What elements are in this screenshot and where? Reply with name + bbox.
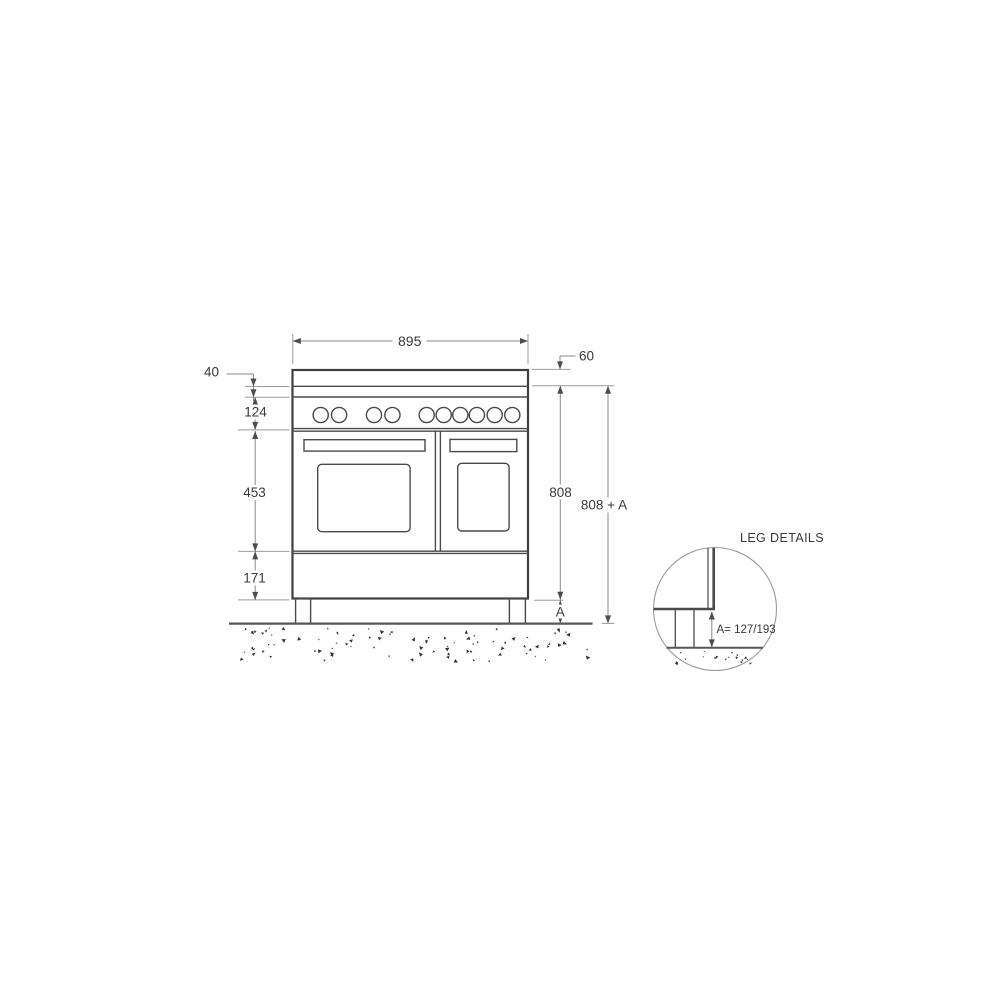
dimension-label-control-panel: 124 xyxy=(244,405,267,420)
ground-speck xyxy=(419,646,423,650)
right-oven-handle xyxy=(450,439,517,451)
arrow-down-icon xyxy=(557,592,563,600)
dimension-label-overall-width: 895 xyxy=(398,333,422,349)
ground-speck xyxy=(566,633,570,637)
arrow-up-icon xyxy=(709,612,715,620)
arrow-up-icon xyxy=(605,386,611,394)
ground-speck xyxy=(352,634,354,637)
ground-speck xyxy=(265,630,268,633)
ground-speck xyxy=(378,637,382,640)
dimension-label-oven-door: 453 xyxy=(243,485,266,500)
ground-speck xyxy=(467,650,470,654)
ground-speck xyxy=(390,631,393,633)
ground-speck xyxy=(254,630,257,633)
ground-speck xyxy=(488,661,490,663)
ground-speck xyxy=(380,630,384,634)
ground-speck xyxy=(736,654,738,656)
ground-speck xyxy=(318,639,320,641)
ground-speck xyxy=(545,659,547,661)
ground-speck xyxy=(565,631,567,633)
ground-speck xyxy=(268,628,270,630)
ground-speck xyxy=(523,645,526,648)
cooker-front-elevation xyxy=(229,370,593,663)
ground-speck xyxy=(557,628,560,633)
ground-speck xyxy=(444,637,447,640)
ground-speck xyxy=(446,656,449,659)
ground-speck xyxy=(245,628,247,631)
control-knobs xyxy=(313,407,520,422)
ground-speck xyxy=(453,642,455,643)
range-cooker-dimension-diagram: 895 60 40 124 453 171 808 xyxy=(0,0,1000,1000)
ground-speck xyxy=(252,653,256,656)
right-oven-window xyxy=(458,463,509,531)
ground-speck xyxy=(262,650,265,653)
ground-speck xyxy=(525,653,527,655)
ground-speck xyxy=(586,649,588,651)
dimension-label-hob-trim: 40 xyxy=(204,365,219,380)
knob-icon xyxy=(366,407,381,422)
ground-speck xyxy=(345,643,348,646)
knob-icon xyxy=(436,407,451,422)
ground-speck xyxy=(369,637,371,640)
ground-speck xyxy=(534,656,536,658)
leg-detail-dimension-label: A= 127/193 xyxy=(717,624,776,636)
ground-speck xyxy=(297,637,301,641)
knob-icon xyxy=(332,407,347,422)
ground-speck xyxy=(747,659,749,660)
ground-speck xyxy=(725,658,727,660)
ground-speck xyxy=(314,649,316,652)
ground-speck xyxy=(704,651,705,653)
dimension-label-body-height: 808 xyxy=(549,485,572,500)
ground-speck xyxy=(731,652,733,654)
ground-speck xyxy=(470,651,473,654)
arrow-down-icon xyxy=(252,543,258,551)
ground-speck xyxy=(454,659,458,663)
ground-speck xyxy=(271,634,273,636)
ground-speck xyxy=(336,642,338,644)
arrow-up-icon xyxy=(252,551,258,559)
ground-speck xyxy=(368,628,370,630)
knob-icon xyxy=(487,407,502,422)
knob-icon xyxy=(453,407,468,422)
ground-speck xyxy=(419,652,423,656)
knob-icon xyxy=(385,407,400,422)
ground-speck xyxy=(703,656,704,658)
ground-speck xyxy=(680,652,682,654)
ground-speck xyxy=(433,650,436,653)
ground-speck xyxy=(526,637,528,639)
ground-speck xyxy=(349,639,353,642)
knob-icon xyxy=(469,407,484,422)
arrow-down-icon xyxy=(251,379,257,387)
ground-speck xyxy=(529,648,532,651)
right-leg xyxy=(509,599,525,624)
ground-speck xyxy=(554,632,556,635)
ground-speck xyxy=(373,646,375,648)
dimension-label-overall-height: 808 + A xyxy=(581,498,627,513)
arrow-left-icon xyxy=(293,338,301,344)
ground-speck xyxy=(428,637,430,639)
ground-speck xyxy=(327,627,329,629)
ground-speck xyxy=(548,642,550,644)
ground-speck xyxy=(447,652,450,655)
arrow-down-icon xyxy=(252,422,258,430)
dimension-annotations: 895 60 40 124 453 171 808 xyxy=(204,333,633,623)
ground-speck xyxy=(388,656,390,658)
ground-texture xyxy=(240,627,590,663)
arrow-down-icon xyxy=(557,361,563,369)
ground-speck xyxy=(728,656,730,658)
leg-detail-callout: LEG DETAILS A= 127/193 xyxy=(654,531,825,671)
ground-speck xyxy=(318,649,322,653)
ground-speck xyxy=(675,663,678,666)
ground-speck xyxy=(273,644,275,646)
arrow-down-icon xyxy=(709,639,715,647)
ground-speck xyxy=(447,646,449,648)
left-oven-window xyxy=(318,464,410,531)
ground-speck xyxy=(558,643,562,647)
ground-speck xyxy=(270,656,273,658)
ground-speck xyxy=(473,659,475,662)
knob-icon xyxy=(313,407,328,422)
ground-speck xyxy=(535,645,539,649)
ground-speck xyxy=(282,627,286,630)
ground-speck xyxy=(685,659,687,661)
ground-speck xyxy=(744,656,747,659)
leg-detail-title: LEG DETAILS xyxy=(740,531,824,545)
dimension-label-leg-height: A xyxy=(556,605,565,620)
dimension-label-top-section: 60 xyxy=(579,349,594,364)
arrow-up-icon xyxy=(252,431,258,439)
left-oven-handle xyxy=(304,440,425,451)
ground-speck xyxy=(323,660,326,662)
arrow-up-icon xyxy=(557,386,563,394)
ground-speck xyxy=(410,658,413,662)
knob-icon xyxy=(505,407,520,422)
ground-speck xyxy=(465,630,468,634)
ground-speck xyxy=(749,663,752,665)
ground-speck xyxy=(240,658,244,661)
ground-speck xyxy=(493,641,495,643)
ground-speck xyxy=(251,647,254,650)
ground-speck xyxy=(466,636,470,639)
ground-speck xyxy=(498,653,502,656)
ground-speck xyxy=(268,644,270,646)
knob-icon xyxy=(419,407,434,422)
ground-speck xyxy=(741,659,743,661)
ground-speck xyxy=(740,661,743,663)
technical-drawing-page: 895 60 40 124 453 171 808 xyxy=(0,0,1000,1000)
ground-speck xyxy=(261,633,264,635)
ground-speck xyxy=(586,656,590,660)
ground-speck xyxy=(389,633,391,635)
ground-speck xyxy=(350,646,352,648)
dimension-label-plinth: 171 xyxy=(243,571,266,586)
arrow-down-icon xyxy=(251,389,257,397)
arrow-down-icon xyxy=(605,615,611,623)
ground-speck xyxy=(473,635,475,637)
ground-speck xyxy=(495,628,497,631)
ground-speck xyxy=(412,637,415,641)
arrow-right-icon xyxy=(520,338,528,344)
ground-speck xyxy=(504,641,506,644)
arrow-down-icon xyxy=(252,592,258,600)
ground-speck xyxy=(425,640,428,644)
ground-speck xyxy=(512,637,516,641)
ground-speck xyxy=(547,645,549,648)
ground-speck xyxy=(282,639,286,643)
left-leg xyxy=(296,599,311,624)
ground-speck xyxy=(501,647,505,651)
ground-speck xyxy=(472,643,474,645)
ground-speck xyxy=(477,641,479,643)
ground-speck xyxy=(562,641,566,645)
ground-speck xyxy=(736,656,739,659)
ground-speck xyxy=(331,648,333,650)
ground-speck xyxy=(243,652,245,653)
